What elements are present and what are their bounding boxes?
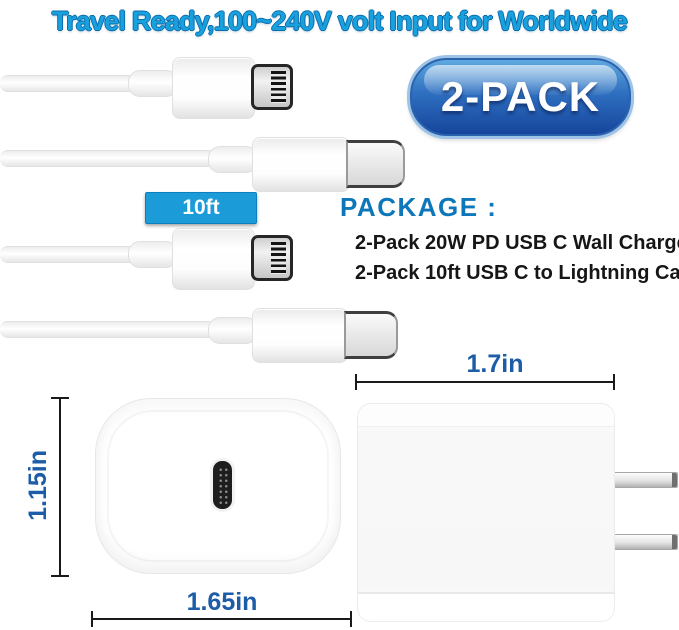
- dimension-line: [356, 381, 614, 383]
- cable-length-tag: 10ft: [145, 192, 257, 224]
- lightning-pins: [271, 71, 286, 103]
- dimension-tick-bottom: [51, 575, 69, 577]
- connector-housing: [252, 137, 350, 192]
- two-pack-badge-label: 2-PACK: [441, 73, 600, 121]
- wall-charger-front-view: [95, 398, 341, 574]
- connector-housing: [172, 57, 255, 119]
- usbc-cable-row-1: [0, 137, 410, 193]
- plug-prong-bottom: [608, 534, 678, 550]
- dimension-tick-right: [613, 374, 615, 390]
- usbc-connector: [344, 311, 398, 359]
- two-pack-badge: 2-PACK: [410, 58, 631, 136]
- charger-bottom-cap: [358, 592, 614, 621]
- usbc-cable-row-2: [0, 308, 410, 364]
- dimension-tick-left: [355, 374, 357, 390]
- dimension-label-side-width: 1.7in: [420, 350, 570, 379]
- wall-charger-side-view: [357, 403, 615, 622]
- dimension-line: [59, 398, 61, 577]
- charger-top-cap: [358, 404, 614, 427]
- cable-wire: [0, 150, 216, 167]
- cable-strain-relief: [128, 70, 178, 97]
- connector-housing: [172, 228, 255, 290]
- package-item-cables: 2-Pack 10ft USB C to Lightning Cables: [355, 262, 679, 285]
- dimension-line: [92, 618, 352, 620]
- dimension-tick-left: [91, 611, 93, 627]
- usbc-port-pins: [217, 466, 228, 504]
- dimension-tick-right: [350, 611, 352, 627]
- dimension-tick-top: [51, 397, 69, 399]
- package-heading: PACKAGE :: [340, 192, 497, 223]
- product-infographic: Travel Ready,100~240V volt Input for Wor…: [0, 0, 679, 630]
- cable-strain-relief: [208, 146, 258, 173]
- lightning-connector: [251, 235, 293, 281]
- lightning-cable-row-2: [0, 227, 295, 291]
- usbc-connector: [346, 140, 405, 188]
- usbc-port: [213, 461, 232, 509]
- plug-prong-top: [608, 472, 678, 488]
- headline-text: Travel Ready,100~240V volt Input for Wor…: [0, 6, 679, 37]
- cable-strain-relief: [128, 241, 178, 268]
- cable-wire: [0, 321, 216, 338]
- connector-housing: [252, 308, 348, 363]
- cable-strain-relief: [208, 317, 258, 344]
- dimension-label-front-width: 1.65in: [147, 588, 297, 617]
- lightning-connector: [251, 64, 293, 110]
- lightning-cable-row-1: [0, 56, 295, 120]
- cable-length-label: 10ft: [182, 196, 219, 220]
- package-item-charger: 2-Pack 20W PD USB C Wall Charger: [355, 232, 679, 255]
- lightning-pins: [271, 242, 286, 274]
- dimension-label-front-height: 1.15in: [24, 450, 53, 521]
